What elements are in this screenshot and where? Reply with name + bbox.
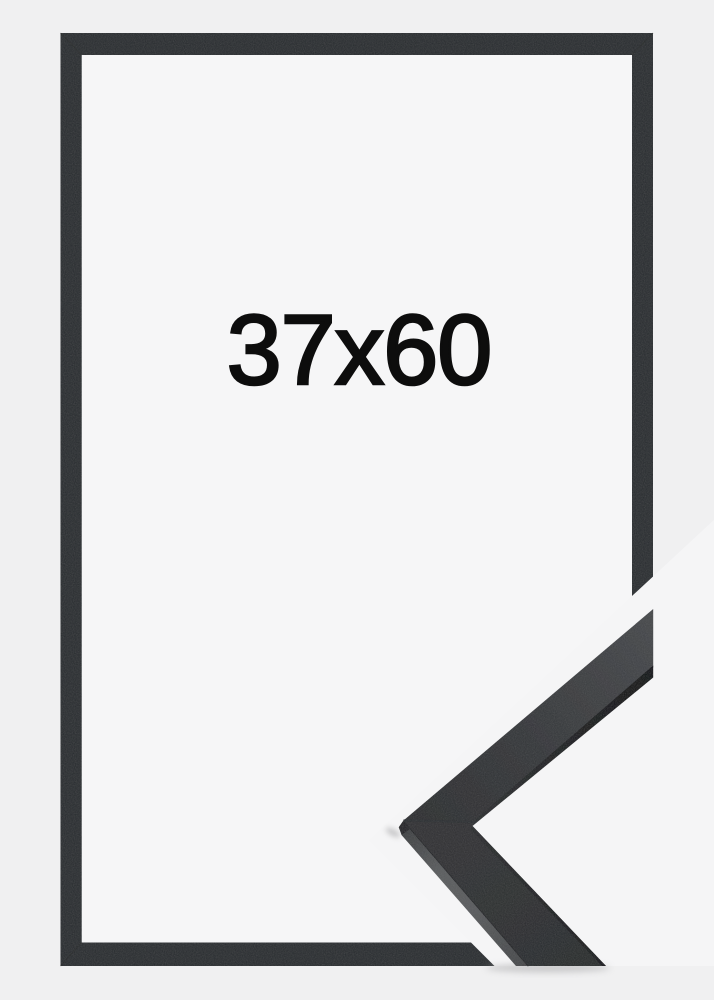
- svg-text:37x60: 37x60: [227, 294, 492, 405]
